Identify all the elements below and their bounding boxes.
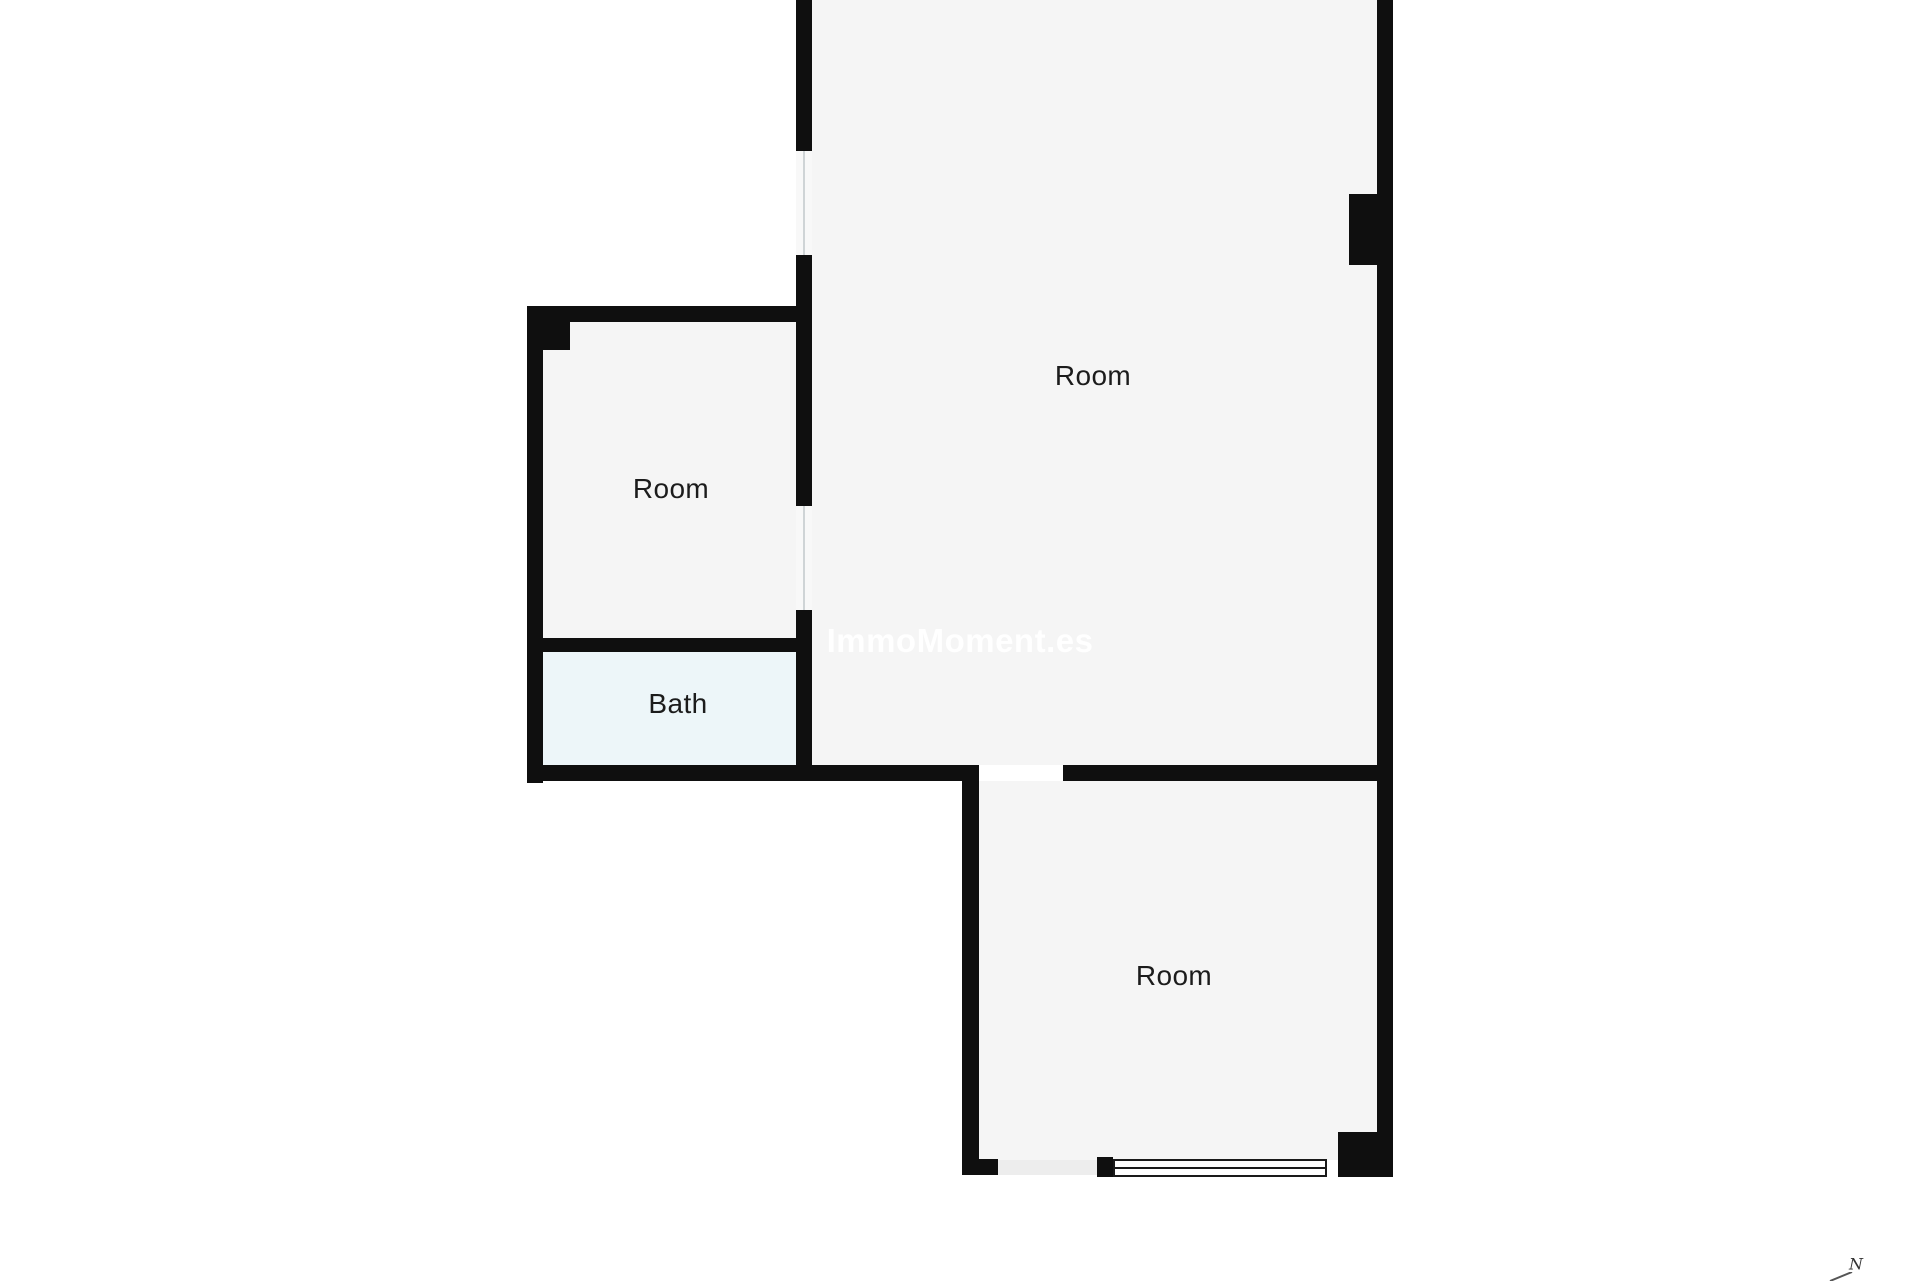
window-bottom [1113,1159,1327,1177]
wall-outer-left [527,306,543,783]
floor-plan: ImmoMoment.es N RoomRoomBathRoom [0,0,1920,1280]
wall-bottomroom-stub [962,1159,998,1175]
wall-bottomroom-left [962,778,979,1175]
window-left-lower [796,506,812,610]
wall-main-right [1377,0,1393,1177]
pillar-bottom-right [1338,1132,1393,1177]
north-indicator-label: N [1849,1255,1863,1274]
wall-main-left-lower [796,610,812,781]
opening-bottom-edge [998,1160,1097,1175]
door-gap-bottomroom [979,765,1063,781]
room-left-label: Room [633,473,709,505]
wall-bottom-left-section [527,765,979,781]
watermark: ImmoMoment.es [827,622,1094,660]
window-left-lower-pane-line [803,506,805,610]
wall-bottom-right-section [1063,765,1393,781]
room-top-label: Room [1055,360,1131,392]
wall-bath-divider [527,638,812,652]
wall-main-left-middle [796,255,812,506]
wall-main-left-upper [796,0,812,151]
wall-bottom-block [1097,1157,1113,1177]
pillar-right-wall [1349,194,1378,265]
window-left-upper-pane-line [803,151,805,255]
bath-label: Bath [648,688,707,720]
window-left-upper [796,151,812,255]
room-bottom-label: Room [1136,960,1212,992]
window-bottom-pane-line [1115,1167,1325,1169]
